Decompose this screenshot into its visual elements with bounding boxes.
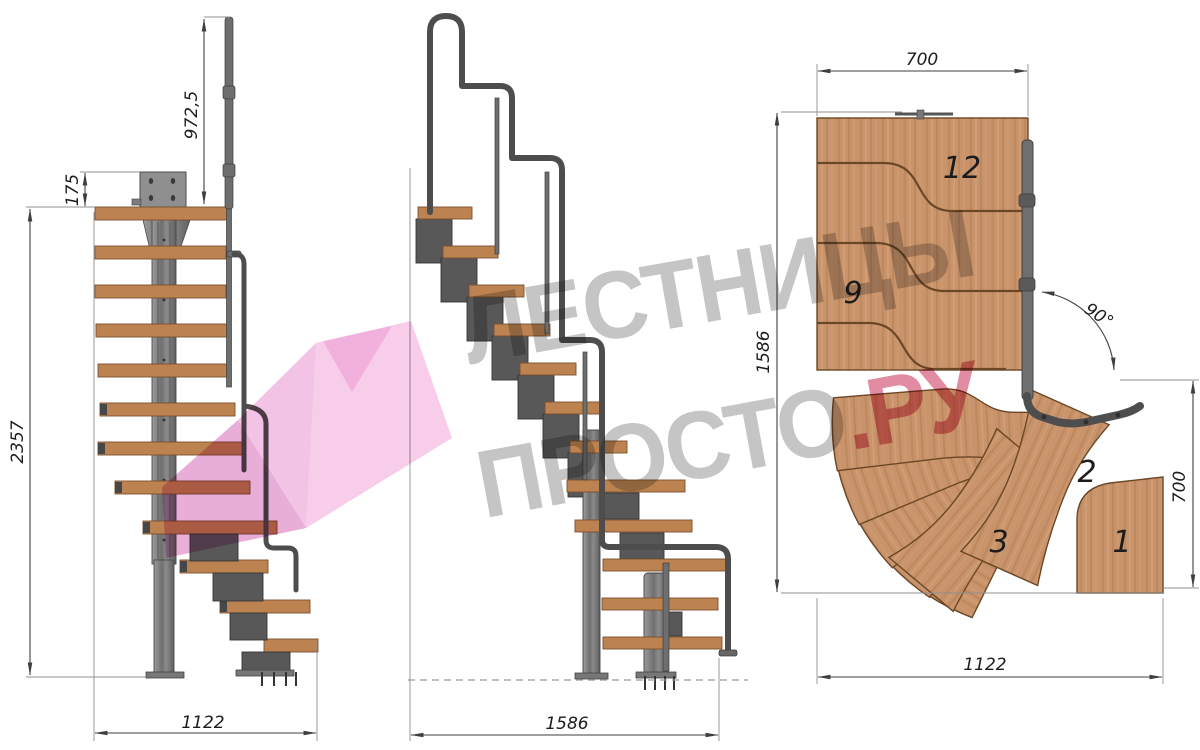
step-number-2: 2 — [1077, 455, 1096, 490]
step-number-1: 1 — [1112, 525, 1131, 560]
dimension-label: 1586 — [754, 330, 774, 373]
plan-handrail — [1019, 140, 1140, 424]
dimension-label: 1122 — [963, 655, 1006, 675]
dimension-label: 700 — [906, 50, 938, 70]
dimension-label: 1586 — [545, 714, 588, 734]
dimension-label: 700 — [1170, 471, 1190, 503]
dimension-label: 90° — [1081, 299, 1117, 332]
dimension-label: 1122 — [181, 713, 224, 733]
dimension-plan-width-top: 700 — [817, 50, 1028, 116]
top-mounting-plate — [132, 172, 186, 208]
step-number-9: 9 — [843, 276, 862, 311]
front-elevation-view: 972,5 175 2357 1122 — [8, 17, 318, 741]
dimension-plan-angle: 90° — [1042, 292, 1117, 370]
dimension-label: 2357 — [8, 420, 28, 463]
staircase-technical-drawing: 972,5 175 2357 1122 — [0, 0, 1200, 750]
step-number-12: 12 — [943, 151, 981, 186]
drawing-canvas: 972,5 175 2357 1122 — [0, 0, 1200, 750]
dimension-label: 972,5 — [182, 91, 202, 140]
dimension-label: 175 — [63, 174, 83, 206]
dimension-front-plate-height: 175 — [60, 172, 140, 207]
watermark-arrow-logo — [162, 321, 452, 558]
side-elevation-view: 1586 — [408, 16, 748, 741]
plan-view: 90° 700 1586 700 1122 12 9 3 2 1 — [754, 50, 1199, 684]
step-number-3: 3 — [989, 525, 1008, 560]
dimension-plan-length-bottom: 1122 — [817, 598, 1163, 684]
plan-upper-flight-panel — [817, 110, 1028, 370]
